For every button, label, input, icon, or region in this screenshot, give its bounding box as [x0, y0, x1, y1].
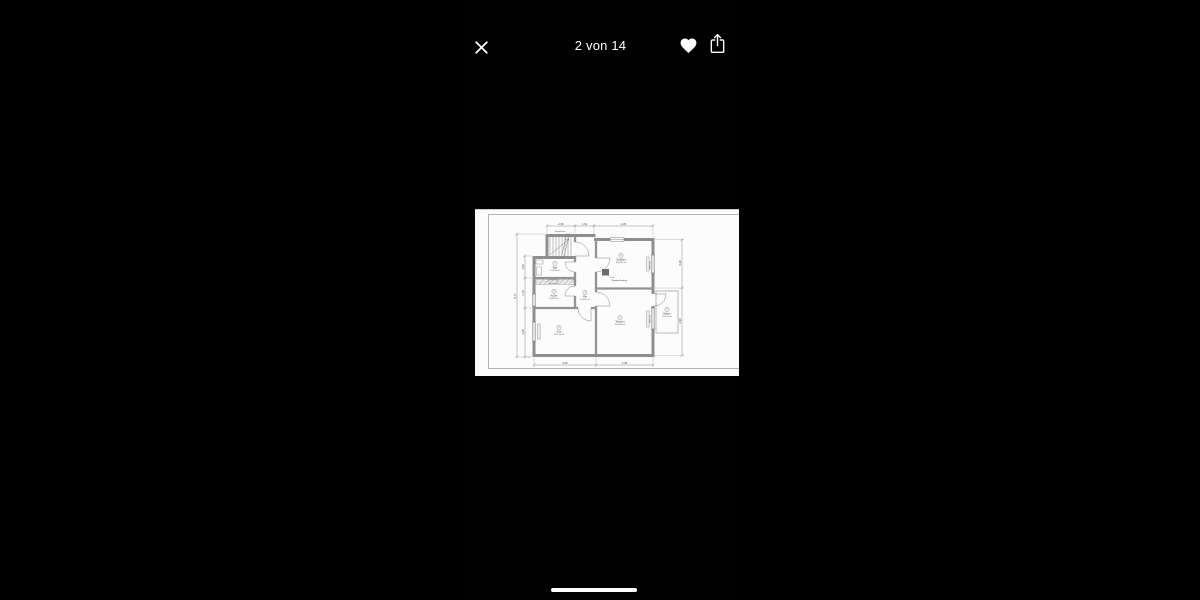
plan-dimensions: 2,39 1,64 4,05 5,40 4,05 1,40 2,10 3,45 … — [513, 222, 684, 367]
photo-floorplan[interactable]: 2,39 1,64 4,05 5,40 4,05 1,40 2,10 3,45 … — [475, 209, 739, 376]
svg-text:Bad: Bad — [553, 266, 558, 269]
room-label-wohnen: 5 Wohnen F=18,26 m² — [615, 315, 626, 326]
floorplan-drawing: 2,39 1,64 4,05 5,40 4,05 1,40 2,10 3,45 … — [475, 210, 739, 376]
svg-text:Wohnen: Wohnen — [616, 320, 626, 323]
brh-label-2: BRH 0,91 — [649, 315, 651, 323]
room-label-flur: 3 Flur F=6,05 m² — [580, 290, 590, 301]
svg-text:Balkon: Balkon — [663, 312, 671, 315]
room-label-schlafen: 4 Schlafen F=14,12 m² — [616, 253, 627, 264]
dim-left-2: 2,10 — [521, 290, 525, 296]
dim-right-1: 4,38 — [678, 260, 682, 266]
svg-text:F=6,05 m²: F=6,05 m² — [580, 298, 590, 301]
dim-top-3: 4,05 — [621, 222, 627, 226]
svg-text:1: 1 — [554, 263, 556, 265]
svg-text:F=18,26 m²: F=18,26 m² — [615, 323, 626, 326]
svg-text:Kind: Kind — [557, 330, 562, 333]
dim-left-3: 3,45 — [521, 329, 525, 335]
svg-text:Küche: Küche — [551, 294, 558, 297]
dim-right-2: 2,96 — [678, 318, 682, 324]
heart-icon — [679, 36, 698, 54]
svg-text:4: 4 — [620, 255, 622, 257]
room-label-balkon: 7 Balkon F=3,12 m² — [662, 307, 672, 318]
dim-bottom-2: 4,05 — [622, 361, 628, 365]
svg-text:5: 5 — [619, 317, 621, 319]
room-label-bad: 1 Bad F=4,58 m² — [550, 261, 560, 272]
favorite-button[interactable] — [679, 35, 698, 54]
room-label-kind: 6 Kind F=11,24 m² — [554, 325, 564, 336]
dim-left-1: 1,40 — [521, 264, 525, 270]
radiator — [538, 324, 541, 339]
svg-text:3: 3 — [584, 292, 586, 294]
share-button[interactable] — [709, 33, 726, 54]
annotation-line1: mit — [612, 276, 615, 279]
brh-label-1: BRH 0,91 — [649, 261, 651, 269]
dim-top-1: 2,39 — [558, 222, 564, 226]
svg-text:F=8,32 m²: F=8,32 m² — [549, 297, 559, 300]
home-indicator[interactable] — [551, 588, 637, 592]
dim-bottom-1: 5,40 — [562, 361, 568, 365]
svg-text:Schlafen: Schlafen — [616, 258, 626, 261]
svg-text:F=4,58 m²: F=4,58 m² — [550, 269, 560, 272]
dim-top-2: 1,64 — [582, 222, 588, 226]
svg-text:F=3,12 m²: F=3,12 m² — [662, 315, 672, 318]
share-icon — [709, 33, 726, 54]
photo-viewer-screen: 2 von 14 — [462, 0, 739, 600]
room-label-kueche: 2 Küche F=8,32 m² — [549, 289, 559, 300]
svg-text:2: 2 — [553, 291, 555, 293]
viewer-topbar: 2 von 14 — [462, 0, 739, 90]
svg-text:7: 7 — [666, 309, 668, 311]
annotation-line2: Wandverkleidung — [612, 280, 627, 282]
svg-text:6: 6 — [558, 327, 560, 329]
stair-label: Treppenhaus — [554, 230, 565, 233]
viewer-background: 2 von 14 — [0, 0, 1200, 600]
svg-text:F=14,12 m²: F=14,12 m² — [616, 261, 627, 264]
dim-left-total: 8,77 — [513, 293, 517, 299]
svg-text:F=11,24 m²: F=11,24 m² — [554, 333, 564, 336]
svg-text:Flur: Flur — [583, 295, 587, 298]
